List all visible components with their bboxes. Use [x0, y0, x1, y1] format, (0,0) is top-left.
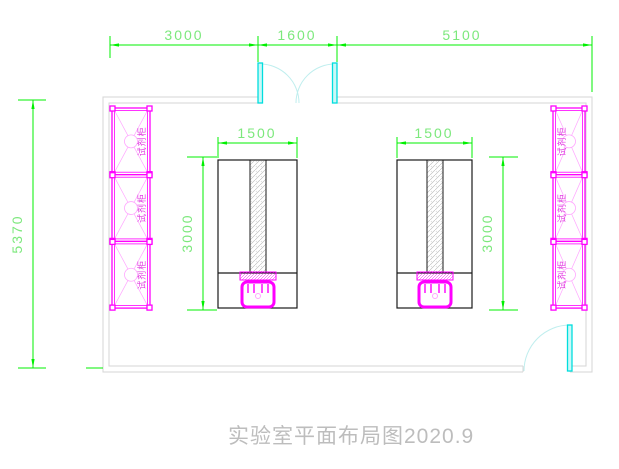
cabinet-label: 试剂柜: [136, 126, 147, 156]
dimensions: 3000 1600 5100 5370 1500 3000: [9, 27, 592, 368]
top-double-door: [258, 63, 337, 103]
door-swing-arc: [296, 64, 335, 103]
cabinet-column-right: 试剂柜 试剂柜 试剂柜: [551, 106, 587, 310]
door-swing-arc: [260, 64, 299, 103]
drawing-title: 实验室平面布局图2020.9: [228, 425, 474, 448]
dim-label-top-mid: 1600: [277, 27, 316, 43]
wall-outer: [103, 97, 592, 372]
dim-label-bench-right-depth: 3000: [479, 213, 495, 252]
door-swing-arc: [524, 325, 570, 371]
bench-hatch-strip: [250, 160, 266, 273]
dimension-bench-left-depth: 3000: [179, 157, 217, 310]
cad-drawing-sheet: 3000 1600 5100 5370 1500 3000: [0, 0, 619, 469]
dim-label-wall-height: 5370: [9, 214, 25, 253]
dim-label-bench-left-width: 1500: [237, 125, 276, 141]
sink-grate: [417, 272, 453, 280]
cabinet-label: 试剂柜: [556, 193, 567, 223]
cabinet-label: 试剂柜: [556, 260, 567, 290]
lab-bench-right: [397, 160, 472, 308]
cabinet-label: 试剂柜: [136, 193, 147, 223]
dimension-bench-right-width: 1500: [397, 125, 472, 158]
dim-label-top-left: 3000: [164, 27, 203, 43]
cabinet-column-left: 试剂柜 试剂柜 试剂柜: [110, 106, 152, 310]
cabinet-label: 试剂柜: [556, 126, 567, 156]
sink-grate: [240, 272, 276, 280]
door-leaf: [568, 325, 573, 371]
dimension-top-chain: 3000 1600 5100: [110, 27, 592, 92]
dim-label-top-right: 5100: [442, 27, 481, 43]
floor-plan-canvas: 3000 1600 5100 5370 1500 3000: [0, 0, 619, 469]
dim-label-bench-left-depth: 3000: [179, 213, 195, 252]
bottom-door: [524, 325, 572, 371]
lab-bench-left: [218, 160, 297, 308]
cabinet-label: 试剂柜: [136, 260, 147, 290]
walls: [103, 97, 592, 372]
door-leaf: [258, 63, 263, 103]
door-leaf: [333, 63, 338, 103]
dimension-bench-left-width: 1500: [218, 125, 297, 158]
dimension-bench-right-depth: 3000: [479, 157, 518, 310]
bench-hatch-strip: [427, 160, 443, 273]
dim-label-bench-right-width: 1500: [414, 125, 453, 141]
dimension-left-wall: 5370: [9, 100, 103, 368]
